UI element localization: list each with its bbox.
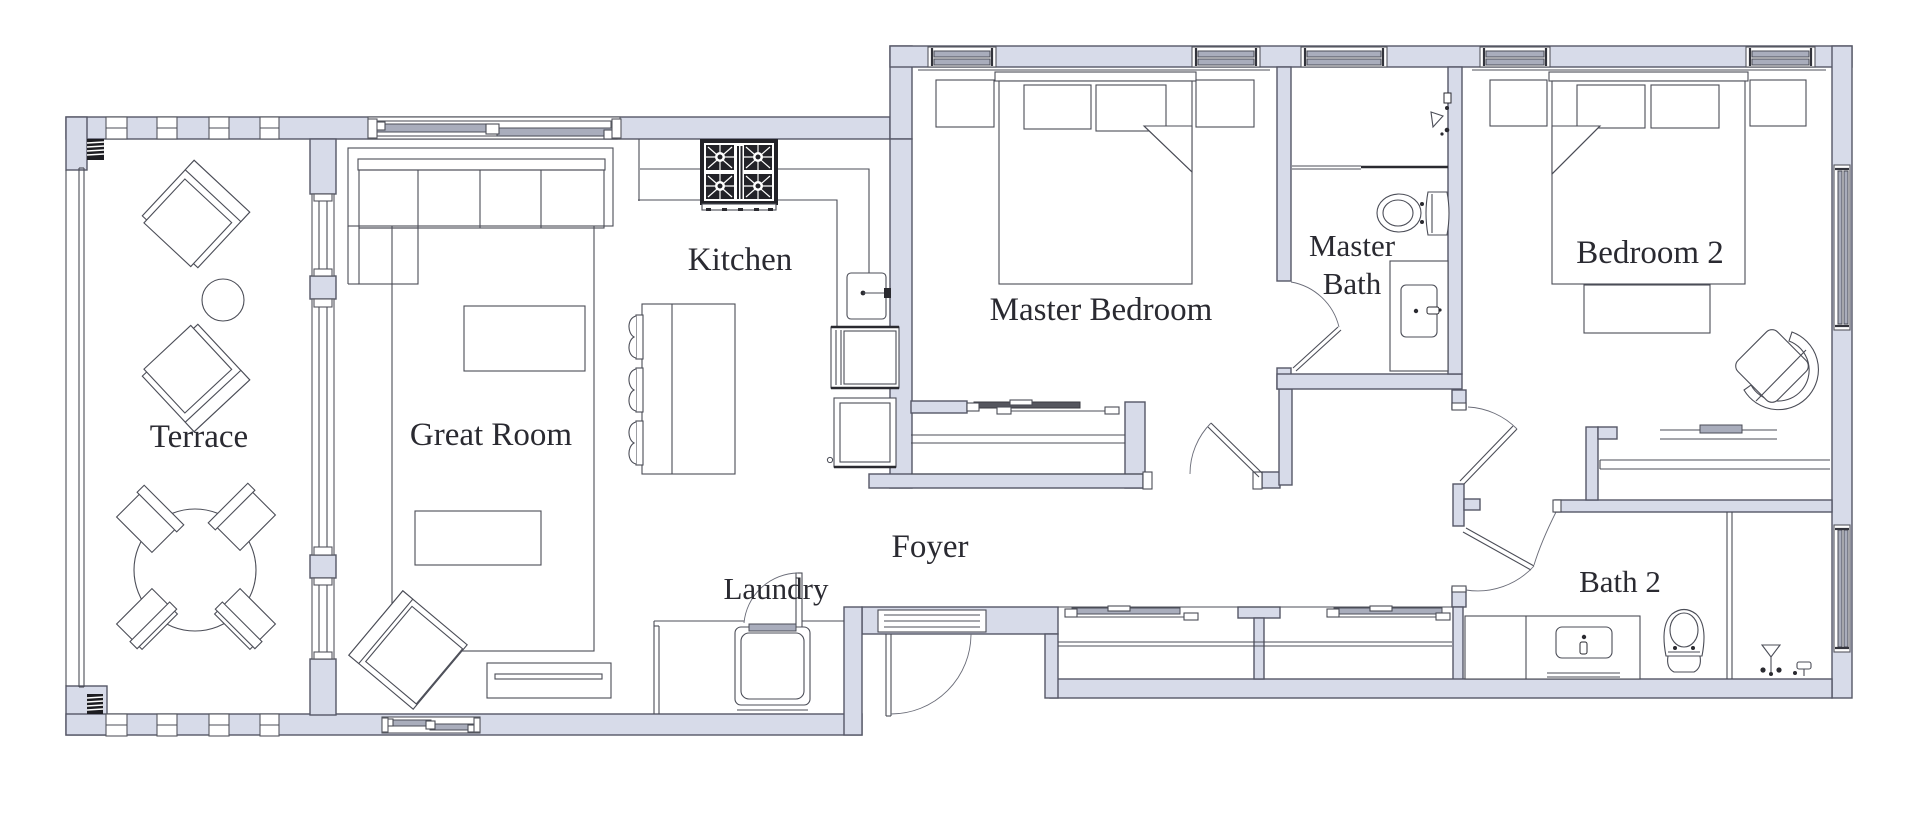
- svg-text:Laundry: Laundry: [723, 571, 829, 606]
- svg-text:Master: Master: [1309, 228, 1396, 263]
- svg-text:Great Room: Great Room: [410, 417, 573, 453]
- svg-text:Terrace: Terrace: [150, 419, 248, 455]
- svg-text:Bath: Bath: [1323, 266, 1382, 301]
- svg-text:Kitchen: Kitchen: [688, 242, 792, 278]
- svg-text:Master Bedroom: Master Bedroom: [990, 292, 1213, 328]
- svg-text:Bath 2: Bath 2: [1579, 564, 1661, 599]
- svg-text:Foyer: Foyer: [892, 529, 969, 565]
- svg-text:Bedroom 2: Bedroom 2: [1576, 235, 1724, 271]
